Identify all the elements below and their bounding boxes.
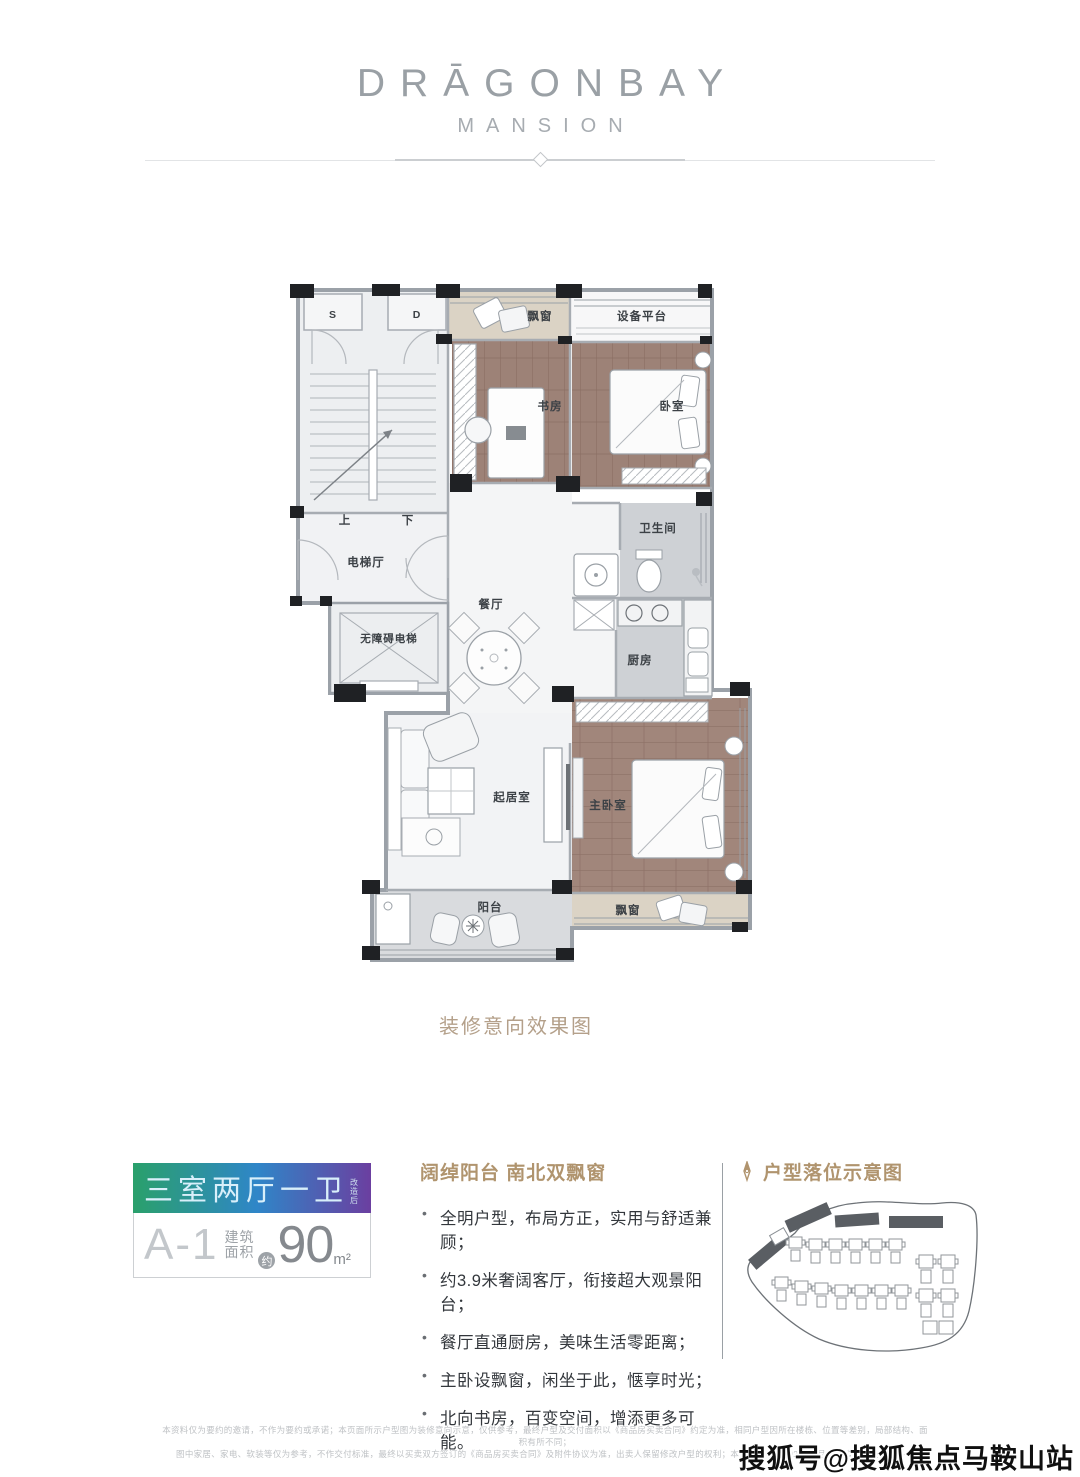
brand-subname: MANSION xyxy=(0,115,1080,138)
plan-caption: 装修意向效果图 xyxy=(276,1010,756,1039)
sitemap-section: 户型落位示意图 xyxy=(737,1158,982,1368)
page: DRĀGONBAY MANSION xyxy=(0,0,1080,1477)
room-label-balcony: 阳台 xyxy=(478,900,503,914)
divider-diamond-ornament xyxy=(533,152,549,168)
area-word-1: 建筑 xyxy=(224,1229,254,1245)
features-heading: 阔绰阳台 南北双飘窗 xyxy=(420,1158,720,1185)
room-label-study: 书房 xyxy=(538,399,563,413)
feature-item: 餐厅直通厨房，美味生活零距离； xyxy=(420,1329,720,1353)
features-section: 阔绰阳台 南北双飘窗 全明户型，布局方正，实用与舒适兼顾； 约3.9米奢阔客厅，… xyxy=(420,1158,720,1467)
area-word-2: 面积 xyxy=(224,1244,254,1260)
feature-item: 全明户型，布局方正，实用与舒适兼顾； xyxy=(420,1205,720,1253)
room-label-master-bedroom: 主卧室 xyxy=(589,798,627,812)
unit-code: A-1 xyxy=(144,1220,218,1270)
floor-plan: S D 飘窗 设备平台 书房 卧室 上 下 电梯厅 无障碍电梯 卫生间 餐厅 厨… xyxy=(276,278,756,993)
room-label-bay-top: 飘窗 xyxy=(528,309,553,323)
sitemap-heading: 户型落位示意图 xyxy=(737,1158,982,1185)
area-approx-badge: 约 xyxy=(258,1252,275,1269)
room-label-up: 上 xyxy=(339,513,352,527)
room-label-bedroom: 卧室 xyxy=(660,399,685,413)
unit-layout-label: 三室两厅一卫 xyxy=(144,1167,348,1209)
feature-item: 约3.9米奢阔客厅，衔接超大观景阳台； xyxy=(420,1267,720,1315)
room-label-bathroom: 卫生间 xyxy=(639,521,677,535)
area-words: 建筑 面积 xyxy=(224,1230,254,1260)
room-label-dining: 餐厅 xyxy=(478,597,504,611)
feature-item: 主卧设飘窗，闲坐于此，惬享时光； xyxy=(420,1367,720,1391)
room-label-elevator-hall: 电梯厅 xyxy=(347,555,385,569)
brand-logo: DRĀGONBAY MANSION xyxy=(0,62,1080,138)
room-label-equipment-platform: 设备平台 xyxy=(617,309,667,323)
room-label-bay-bottom: 飘窗 xyxy=(616,903,641,917)
area-value: 90 xyxy=(277,1215,333,1275)
unit-card: 三室两厅一卫 改造后 A-1 建筑 面积 约 90 m² xyxy=(133,1163,371,1278)
site-plan xyxy=(737,1193,982,1363)
watermark: 搜狐号@搜狐焦点马鞍山站 xyxy=(739,1437,1074,1476)
unit-layout-banner: 三室两厅一卫 改造后 xyxy=(133,1163,371,1213)
sitemap-heading-label: 户型落位示意图 xyxy=(763,1158,903,1185)
room-label-kitchen: 厨房 xyxy=(628,653,653,667)
compass-icon xyxy=(737,1161,757,1183)
unit-layout-note: 改造后 xyxy=(350,1178,360,1205)
area-unit: m² xyxy=(333,1251,351,1268)
brand-name: DRĀGONBAY xyxy=(0,62,1080,106)
features-list: 全明户型，布局方正，实用与舒适兼顾； 约3.9米奢阔客厅，衔接超大观景阳台； 餐… xyxy=(420,1205,720,1453)
room-label-down: 下 xyxy=(402,514,415,527)
room-label-accessible-elevator: 无障碍电梯 xyxy=(359,632,418,645)
room-label-s: S xyxy=(329,309,337,321)
room-label-living: 起居室 xyxy=(492,790,531,804)
accessible-elevator xyxy=(330,603,448,693)
unit-area-row: A-1 建筑 面积 约 90 m² xyxy=(133,1213,371,1278)
room-label-d: D xyxy=(413,309,422,321)
section-divider xyxy=(722,1163,723,1359)
